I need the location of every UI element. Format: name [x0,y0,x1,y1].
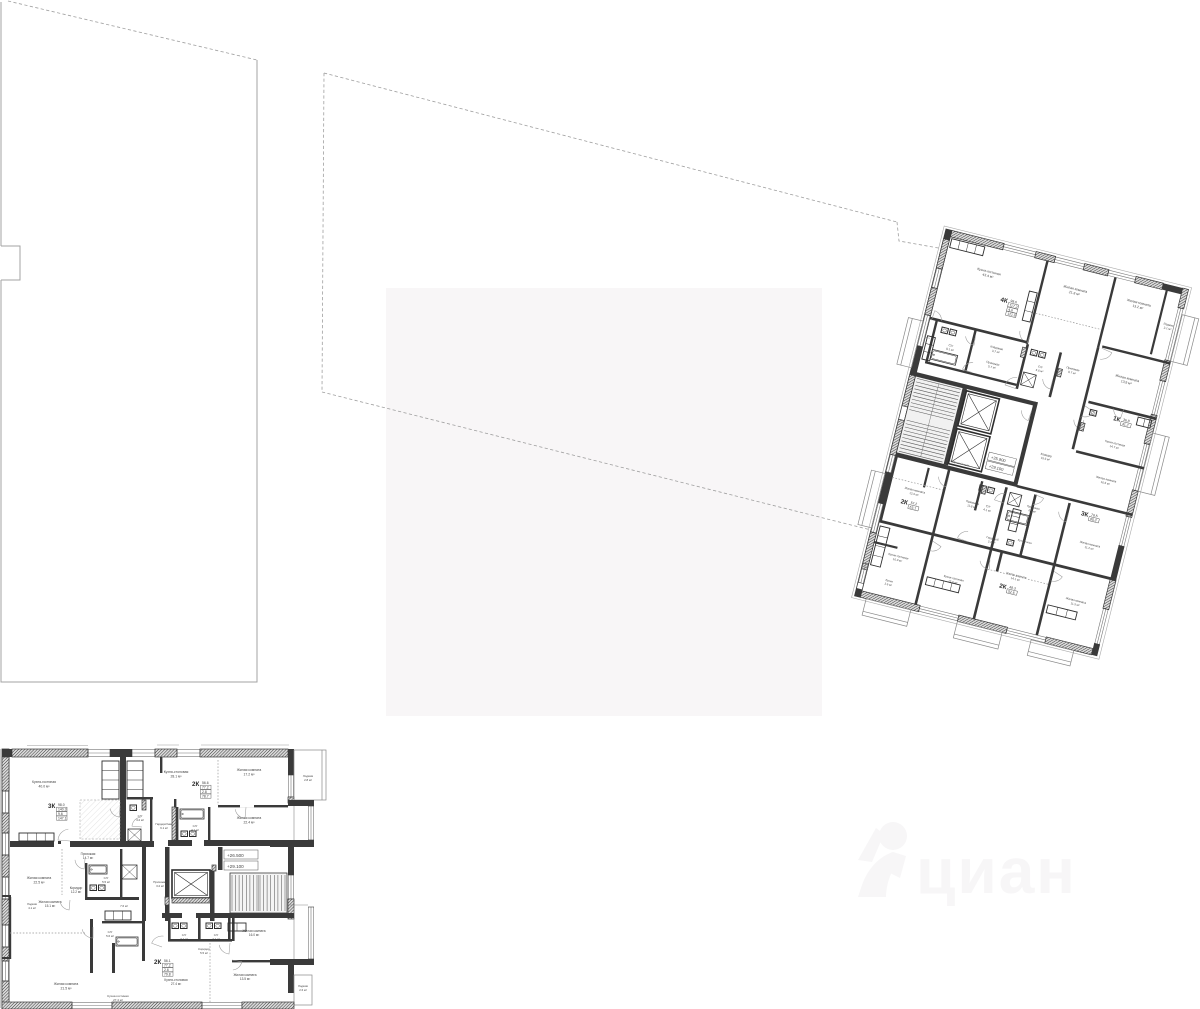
svg-text:4.1 м²: 4.1 м² [191,828,199,832]
svg-text:5.5 м²: 5.5 м² [200,951,208,955]
svg-text:21.5 м²: 21.5 м² [60,986,72,990]
svg-text:28.1 м²: 28.1 м² [170,774,182,778]
svg-text:9.6: 9.6 [58,812,63,816]
svg-text:2.6 м²: 2.6 м² [299,988,307,992]
svg-text:27.4 м²: 27.4 м² [113,998,123,1002]
svg-text:4.1 м²: 4.1 м² [212,937,220,941]
svg-text:40.0 м²: 40.0 м² [38,784,50,788]
svg-text:12.2 м²: 12.2 м² [71,890,81,894]
svg-text:56.6: 56.6 [202,781,209,785]
svg-text:77.2: 77.2 [202,786,209,790]
svg-text:2.6: 2.6 [164,968,169,972]
svg-text:22.4 м²: 22.4 м² [243,820,255,824]
svg-text:56.1: 56.1 [164,959,171,963]
svg-text:15.1 м²: 15.1 м² [45,904,55,908]
svg-text:13.5 м²: 13.5 м² [240,977,250,981]
svg-text:+29.100: +29.100 [227,864,244,869]
svg-text:140.3: 140.3 [58,808,67,812]
svg-text:5.6 м²: 5.6 м² [106,934,114,938]
svg-text:14.7 м²: 14.7 м² [83,856,93,860]
svg-text:Жилая комната: Жилая комната [237,768,262,772]
svg-text:Жилая комната: Жилая комната [237,816,262,820]
svg-text:7.6 м²: 7.6 м² [120,904,128,908]
svg-text:79.8: 79.8 [164,972,171,976]
svg-text:2К: 2К [192,781,199,788]
svg-text:4.2 м²: 4.2 м² [136,818,144,822]
svg-text:Жилая комната: Жилая комната [27,876,52,880]
svg-text:4.1 м²: 4.1 м² [28,906,36,910]
svg-text:22.5 м²: 22.5 м² [33,880,45,884]
svg-text:циан: циан [916,835,1077,907]
svg-text:Жилая комната: Жилая комната [54,982,79,986]
svg-text:2.8: 2.8 [202,790,207,794]
svg-text:3.2 м²: 3.2 м² [156,884,164,888]
svg-text:+26.500: +26.500 [227,853,244,858]
svg-text:3К: 3К [48,803,55,810]
svg-text:16.0 м²: 16.0 м² [249,933,259,937]
svg-text:17.2 м²: 17.2 м² [243,772,255,776]
svg-text:2.8 м²: 2.8 м² [304,778,312,782]
svg-text:6.1 м²: 6.1 м² [160,826,168,830]
svg-text:78.7: 78.7 [202,794,209,798]
svg-text:27.4 м²: 27.4 м² [171,982,181,986]
svg-text:147.1: 147.1 [58,816,67,820]
svg-text:77.2: 77.2 [164,964,171,968]
svg-text:5.5 м²: 5.5 м² [102,880,110,884]
svg-text:Кухня-столовая: Кухня-столовая [164,770,189,774]
svg-text:3.1 м²: 3.1 м² [180,937,188,941]
svg-text:Кухня-гостиная: Кухня-гостиная [32,780,56,784]
svg-text:2К: 2К [154,959,161,966]
svg-text:98.0: 98.0 [58,803,65,807]
